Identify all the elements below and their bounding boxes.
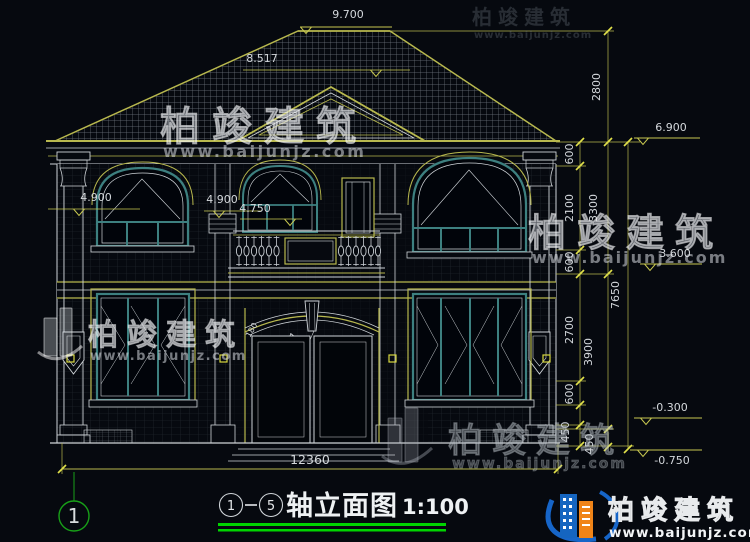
logo-url: www.baijunjz.com <box>609 525 750 541</box>
drawing-canvas: R5607 180 9.700 8.517 4.900 <box>0 0 750 542</box>
svg-text:www.baijunjz.com: www.baijunjz.com <box>90 349 247 364</box>
door-leaf-left <box>252 336 310 443</box>
elevation-eave: 6.900 <box>655 121 687 134</box>
elevation-footing: -0.750 <box>654 454 689 467</box>
title-axis-end: 5 <box>267 499 275 514</box>
svg-text:www.baijunjz.com: www.baijunjz.com <box>452 456 627 472</box>
elevation-ground-marker: -0.300 <box>634 401 702 425</box>
window-2f-small-panel <box>342 178 374 237</box>
elevation-ridge: 9.700 <box>332 8 364 21</box>
drawing-scale: 1:100 <box>402 495 469 519</box>
axis-bubble-label: 1 <box>68 504 81 528</box>
svg-text:www.baijunjz.com: www.baijunjz.com <box>532 248 727 267</box>
dim-2800: 2800 <box>590 73 603 101</box>
svg-text:柏竣建筑: 柏竣建筑 <box>88 318 244 353</box>
dim-600-3: 600 <box>563 384 576 405</box>
dim-2700: 2700 <box>563 316 576 344</box>
svg-text:柏竣建筑: 柏竣建筑 <box>448 421 624 461</box>
cad-elevation-drawing: R5607 180 9.700 8.517 4.900 <box>0 0 750 542</box>
door-leaf-right <box>314 336 372 443</box>
elevation-balcony: 4.750 <box>239 202 271 215</box>
elevation-ridge-marker: 9.700 <box>300 8 392 34</box>
svg-text:www.baijunjz.com: www.baijunjz.com <box>474 30 592 41</box>
logo-building-glyph <box>548 492 617 540</box>
elevation-eave-marker: 6.900 <box>634 121 700 145</box>
watermark-right-middle: 柏竣建筑 www.baijunjz.com <box>528 211 727 267</box>
dim-7650: 7650 <box>609 281 622 309</box>
svg-text:www.baijunjz.com: www.baijunjz.com <box>163 142 366 161</box>
dim-3900: 3900 <box>582 338 595 366</box>
title-underline-1 <box>218 523 446 526</box>
dim-12360: 12360 <box>290 452 330 467</box>
company-logo: 柏竣建筑 www.baijunjz.com <box>548 492 750 541</box>
elevation-left-floor2: 4.900 <box>80 191 112 204</box>
elevation-center-floor2: 4.900 <box>206 193 238 206</box>
balcony-panel <box>285 238 336 264</box>
title-block: 1 5 轴立面图 1:100 <box>218 490 469 532</box>
window-1f-right <box>405 289 534 407</box>
watermark-top-right: 柏竣建筑 www.baijunjz.com <box>472 5 592 41</box>
dim-600-1: 600 <box>563 144 576 165</box>
elevation-footing-marker: -0.750 <box>630 450 702 467</box>
drawing-title: 轴立面图 <box>286 490 398 522</box>
title-axis-start: 1 <box>227 499 235 514</box>
keystone <box>305 301 319 331</box>
logo-brand: 柏竣建筑 <box>608 495 740 526</box>
title-underline-2 <box>218 529 446 532</box>
watermark-center-top: 柏竣建筑 www.baijunjz.com <box>160 104 368 161</box>
axis-bubble-1: 1 <box>59 472 89 531</box>
elevation-pediment: 8.517 <box>246 52 278 65</box>
svg-text:柏竣建筑: 柏竣建筑 <box>472 5 576 29</box>
elevation-ground: -0.300 <box>652 401 687 414</box>
